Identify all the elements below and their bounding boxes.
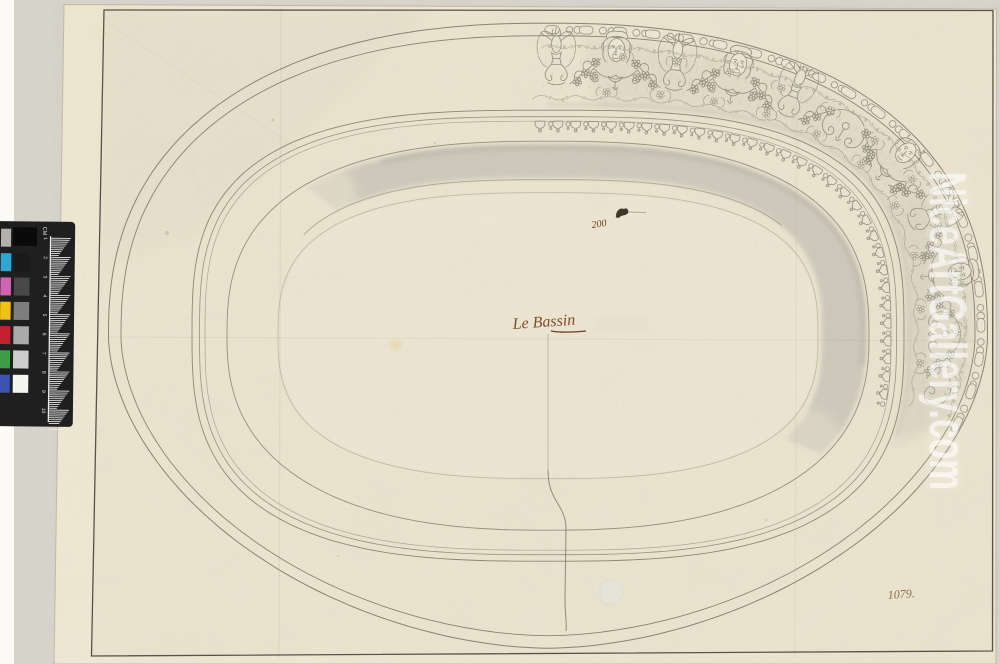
svg-text:4: 4 bbox=[41, 294, 47, 297]
svg-text:7: 7 bbox=[41, 352, 47, 355]
svg-text:1079.: 1079. bbox=[887, 586, 915, 602]
svg-text:1: 1 bbox=[42, 237, 48, 240]
svg-text:10: 10 bbox=[40, 408, 46, 414]
svg-text:2: 2 bbox=[42, 256, 48, 259]
svg-text:NiceArtGallery.com: NiceArtGallery.com bbox=[918, 172, 976, 490]
svg-text:8: 8 bbox=[40, 371, 46, 374]
svg-text:5: 5 bbox=[41, 314, 47, 317]
svg-text:9: 9 bbox=[40, 390, 46, 393]
svg-text:CM: CM bbox=[41, 227, 47, 236]
svg-text:200: 200 bbox=[591, 218, 607, 231]
svg-text:6: 6 bbox=[41, 333, 47, 336]
svg-text:3: 3 bbox=[42, 275, 48, 278]
